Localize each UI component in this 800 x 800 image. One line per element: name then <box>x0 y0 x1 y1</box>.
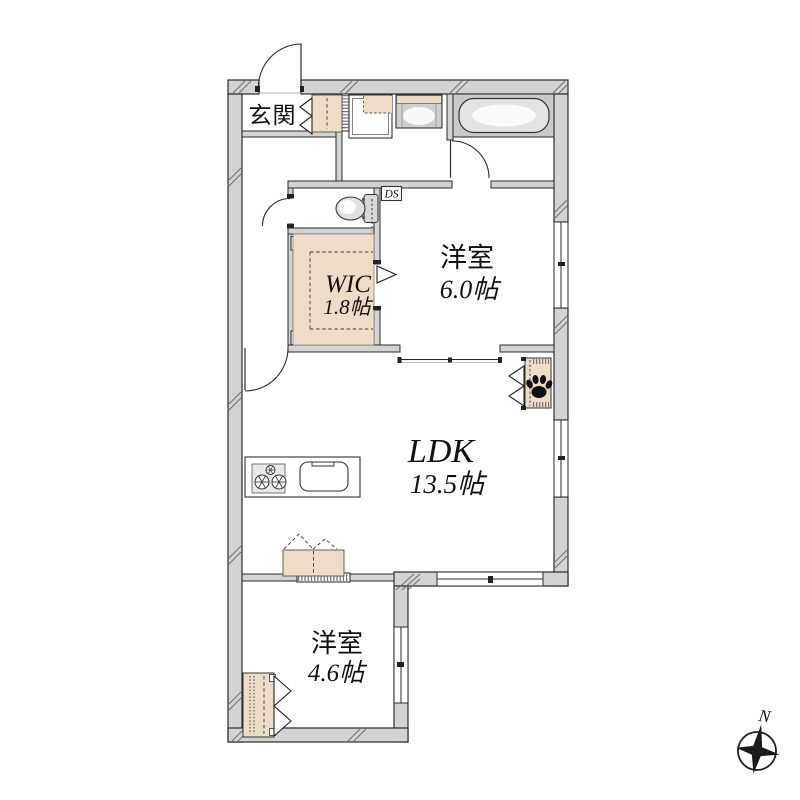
opening-chevron-icon <box>377 266 396 283</box>
washbasin <box>396 95 442 128</box>
compass-north-label: N <box>756 706 773 727</box>
floor-plan: DS PS PS <box>0 0 800 800</box>
opening-chevron-icon <box>300 98 312 116</box>
washing-machine-pan <box>349 95 392 138</box>
bedroom-upper-sliding-door <box>398 357 503 363</box>
wic-size: 1.8帖 <box>323 295 373 319</box>
bathroom <box>453 94 554 137</box>
bedroom-upper-label: 洋室 <box>440 243 494 273</box>
bifold-chevron-icon <box>274 676 291 706</box>
kitchen-counter <box>245 457 360 497</box>
ldk-label: LDK <box>407 433 476 470</box>
kitchen-sink-icon <box>300 462 348 491</box>
opening-chevron-icon <box>509 386 524 406</box>
wic-label: WIC <box>325 271 371 298</box>
ldk-size: 13.5帖 <box>410 469 488 499</box>
shoe-cabinet <box>300 95 342 134</box>
ldk-storage-cabinet <box>283 534 344 576</box>
stove-burners-icon <box>252 464 286 493</box>
entry-partition-strip <box>342 94 349 131</box>
lower-bedroom-closet <box>243 673 291 737</box>
pet-door-unit <box>509 357 554 410</box>
entrance-door <box>255 44 304 93</box>
bedroom-lower-size: 4.6帖 <box>308 660 367 687</box>
floor-plan-drawing: DS PS PS <box>0 0 800 800</box>
ds-label: DS <box>383 189 398 201</box>
genkan-label: 玄関 <box>249 103 297 128</box>
opening-chevron-icon <box>509 366 524 386</box>
toilet-room <box>336 195 378 232</box>
bedroom-lower-label: 洋室 <box>311 629 363 658</box>
toilet-door <box>263 194 295 229</box>
compass-rose-icon: N <box>733 703 787 777</box>
bathroom-door <box>451 140 490 178</box>
hallway-ldk-door <box>245 348 288 391</box>
interior-walls <box>242 94 554 581</box>
bedroom-upper-size: 6.0帖 <box>440 275 503 304</box>
